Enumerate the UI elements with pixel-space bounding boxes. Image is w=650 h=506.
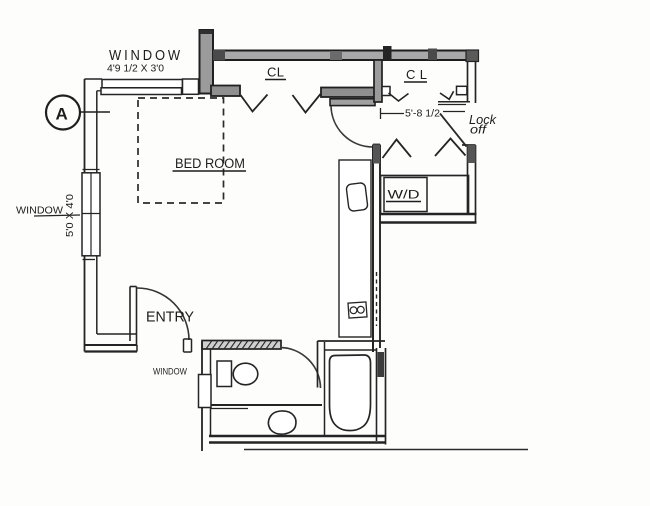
svg-text:off: off — [470, 123, 488, 137]
svg-text:WINDOW: WINDOW — [153, 367, 187, 377]
svg-text:CL: CL — [267, 65, 284, 80]
svg-text:5'-8 1/2: 5'-8 1/2 — [405, 108, 440, 120]
svg-text:4'9 1/2 X 3'0: 4'9 1/2 X 3'0 — [107, 64, 164, 75]
svg-text:5'0 X 4'0: 5'0 X 4'0 — [65, 194, 76, 237]
svg-text:ENTRY: ENTRY — [146, 309, 194, 326]
svg-text:A: A — [56, 105, 68, 124]
svg-text:W/D: W/D — [388, 190, 420, 202]
svg-text:WINDOW: WINDOW — [109, 48, 183, 64]
svg-text:WINDOW: WINDOW — [16, 205, 63, 217]
svg-text:BED ROOM: BED ROOM — [175, 156, 245, 171]
